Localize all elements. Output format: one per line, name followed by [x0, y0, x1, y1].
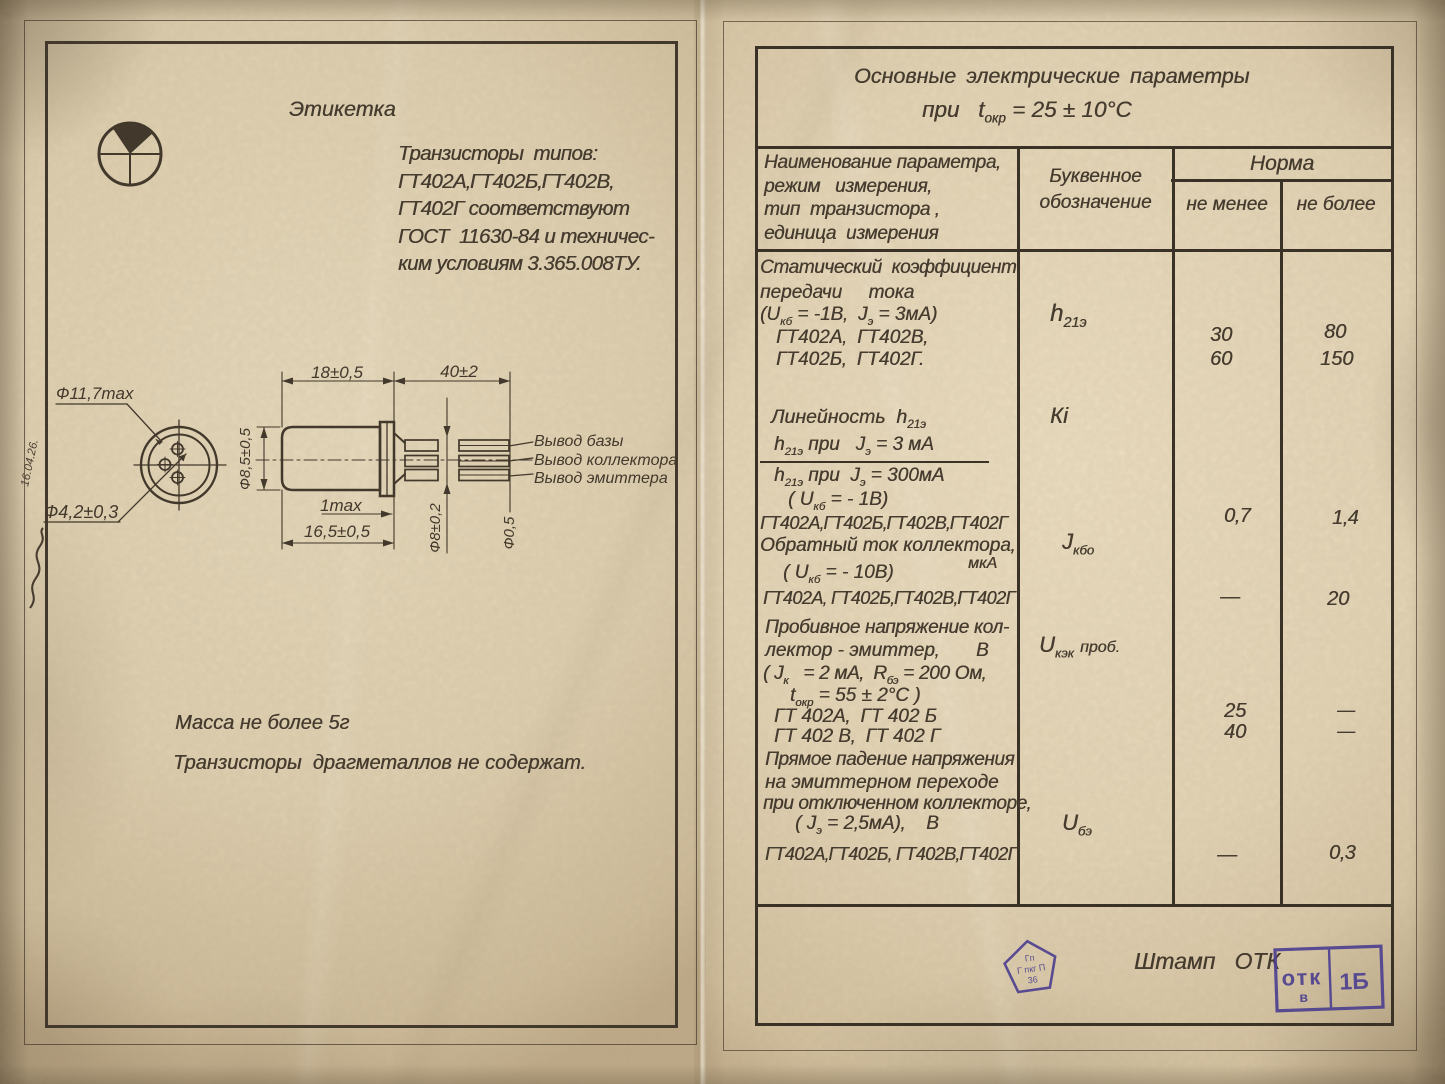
svg-text:отк: отк — [1281, 964, 1323, 990]
svg-text:Ф8±0,2: Ф8±0,2 — [427, 503, 444, 553]
svg-text:18±0,5: 18±0,5 — [311, 363, 363, 382]
svg-text:Ф11,7mах: Ф11,7mах — [56, 384, 134, 403]
svg-text:в: в — [1299, 989, 1309, 1005]
svg-text:Вывод коллектора: Вывод коллектора — [534, 452, 677, 469]
svg-text:16.04.26.: 16.04.26. — [19, 438, 41, 487]
svg-text:36: 36 — [1027, 974, 1038, 985]
svg-text:Вывод эмиттера: Вывод эмиттера — [534, 470, 668, 487]
svg-text:Ф0,5: Ф0,5 — [501, 516, 518, 549]
svg-text:Гп: Гп — [1024, 952, 1035, 963]
svg-text:40±2: 40±2 — [440, 362, 478, 381]
svg-text:Ф8,5±0,5: Ф8,5±0,5 — [237, 427, 254, 490]
svg-text:Г пкг П: Г пкг П — [1016, 962, 1046, 976]
svg-text:Вывод базы: Вывод базы — [534, 433, 624, 450]
svg-text:Ф4,2±0,3: Ф4,2±0,3 — [44, 502, 118, 522]
svg-text:1mах: 1mах — [320, 496, 362, 515]
svg-text:16,5±0,5: 16,5±0,5 — [304, 522, 371, 541]
svg-text:1Б: 1Б — [1339, 968, 1369, 995]
